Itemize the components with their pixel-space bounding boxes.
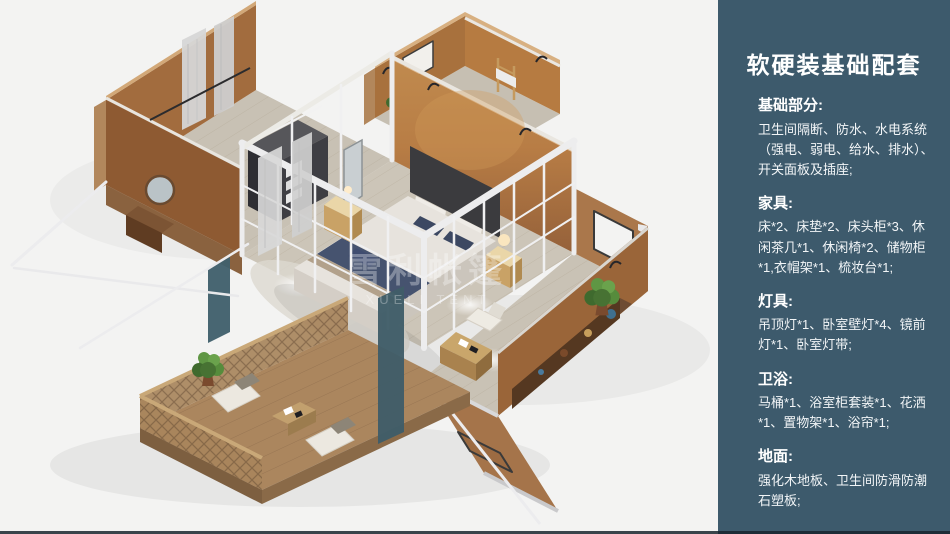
watermark-cn: 雪利帐篷 (348, 252, 508, 290)
section-furniture-heading: 家具: (758, 194, 937, 214)
cabin-render: 雪利帐篷 XUELI TENT (0, 0, 718, 534)
section-basics-heading: 基础部分: (758, 96, 937, 116)
section-furniture: 家具: 床*2、床垫*2、床头柜*3、休闲茶几*1、休闲椅*2、储物柜*1,衣帽… (758, 194, 937, 278)
watermark-en: XUELI TENT (366, 292, 491, 307)
section-basics: 基础部分: 卫生间隔断、防水、水电系统（强电、弱电、给水、排水）、开关面板及插座… (758, 96, 937, 180)
section-furniture-body: 床*2、床垫*2、床头柜*3、休闲茶几*1、休闲椅*2、储物柜*1,衣帽架*1、… (758, 217, 937, 277)
section-lighting-body: 吊顶灯*1、卧室壁灯*4、镜前灯*1、卧室灯带; (758, 315, 937, 355)
sidebar-title: 软硬装基础配套 (718, 46, 950, 80)
section-bathroom-heading: 卫浴: (758, 370, 937, 390)
curtain-teal-front (378, 286, 404, 444)
section-flooring-heading: 地面: (758, 447, 937, 467)
section-basics-body: 卫生间隔断、防水、水电系统（强电、弱电、给水、排水）、开关面板及插座; (758, 120, 937, 180)
curtain-teal-left (208, 257, 230, 343)
section-flooring: 地面: 强化木地板、卫生间防滑防潮石塑板; (758, 447, 937, 511)
section-bathroom-body: 马桶*1、浴室柜套装*1、花洒*1、置物架*1、浴帘*1; (758, 393, 937, 433)
spec-sections: 基础部分: 卫生间隔断、防水、水电系统（强电、弱电、给水、排水）、开关面板及插座… (758, 96, 937, 525)
round-mirror (146, 176, 174, 204)
spec-sidebar: 软硬装基础配套 基础部分: 卫生间隔断、防水、水电系统（强电、弱电、给水、排水）… (718, 0, 950, 534)
section-lighting-heading: 灯具: (758, 292, 937, 312)
cabin-render-svg: 雪利帐篷 XUELI TENT (0, 0, 718, 534)
section-bathroom: 卫浴: 马桶*1、浴室柜套装*1、花洒*1、置物架*1、浴帘*1; (758, 370, 937, 434)
section-lighting: 灯具: 吊顶灯*1、卧室壁灯*4、镜前灯*1、卧室灯带; (758, 292, 937, 356)
slide: 雪利帐篷 XUELI TENT 软硬装基础配套 基础部分: 卫生间隔断、防水、水… (0, 0, 950, 534)
watermark: 雪利帐篷 XUELI TENT (348, 252, 508, 307)
section-flooring-body: 强化木地板、卫生间防滑防潮石塑板; (758, 471, 937, 511)
